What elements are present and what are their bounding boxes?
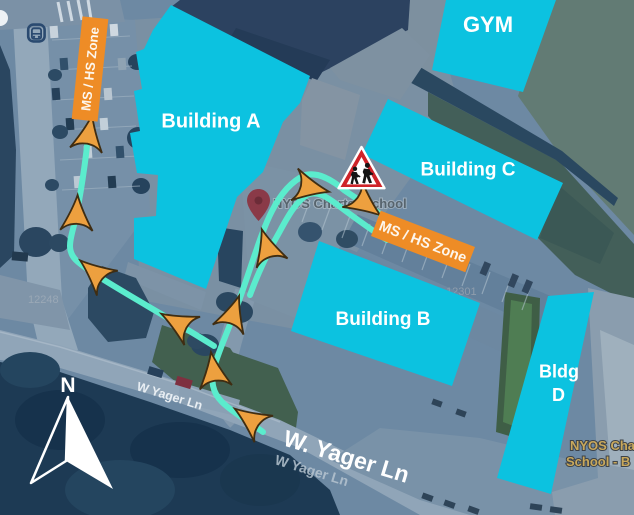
svg-text:NYOS Cha: NYOS Cha (570, 438, 634, 453)
svg-text:N: N (60, 374, 75, 397)
svg-text:Building A: Building A (161, 111, 260, 133)
svg-text:School - B: School - B (566, 454, 630, 469)
svg-text:12248: 12248 (28, 294, 59, 306)
svg-text:GYM: GYM (463, 12, 513, 37)
svg-text:Bldg: Bldg (539, 362, 579, 382)
svg-text:D: D (552, 385, 565, 405)
svg-text:Building C: Building C (421, 160, 516, 181)
svg-text:Building B: Building B (336, 309, 431, 330)
